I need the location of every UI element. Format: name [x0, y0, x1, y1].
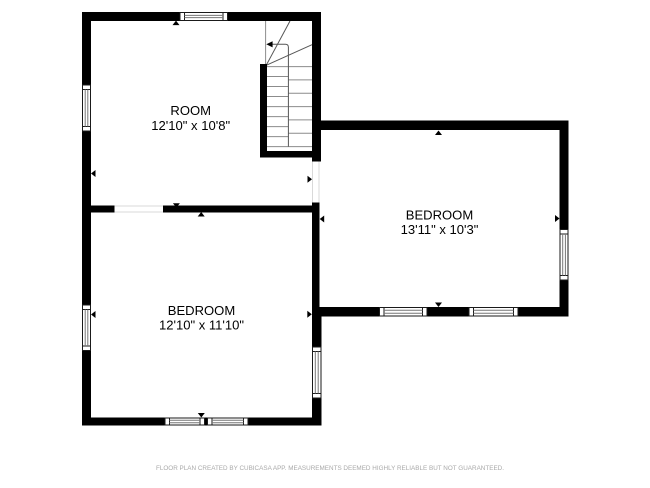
svg-text:ROOM: ROOM — [170, 103, 211, 118]
svg-text:BEDROOM: BEDROOM — [406, 208, 473, 223]
svg-text:12'10" x 10'8": 12'10" x 10'8" — [151, 118, 230, 133]
svg-text:FLOOR PLAN CREATED BY CUBICASA: FLOOR PLAN CREATED BY CUBICASA APP. MEAS… — [156, 465, 504, 472]
svg-text:12'10" x 11'10": 12'10" x 11'10" — [159, 318, 244, 333]
svg-text:BEDROOM: BEDROOM — [168, 303, 235, 318]
svg-text:13'11" x 10'3": 13'11" x 10'3" — [401, 222, 479, 237]
